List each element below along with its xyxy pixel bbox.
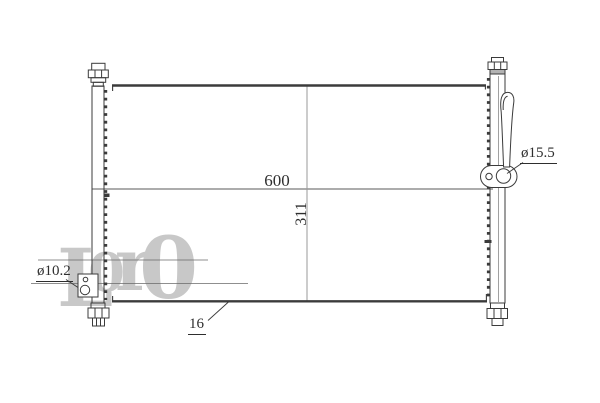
inlet-fitting-block <box>78 274 98 297</box>
technical-drawing-canvas: L 0 r 0 <box>0 0 600 403</box>
right-port-diameter-label: ø15.5 <box>520 145 557 164</box>
bolt-bottom-left <box>88 303 109 326</box>
bolt-top-left <box>88 63 108 86</box>
bolt-top-right <box>488 58 507 75</box>
dim-width-label: 600 <box>251 171 303 191</box>
bolt-bottom-right <box>487 303 508 326</box>
leader-core-depth <box>208 302 229 321</box>
core-depth-label: 16 <box>188 316 206 335</box>
dim-height-label: 311 <box>293 194 311 234</box>
left-port-diameter-label: ø10.2 <box>36 263 73 282</box>
left-tank <box>92 86 110 303</box>
mounting-bracket <box>501 92 514 167</box>
